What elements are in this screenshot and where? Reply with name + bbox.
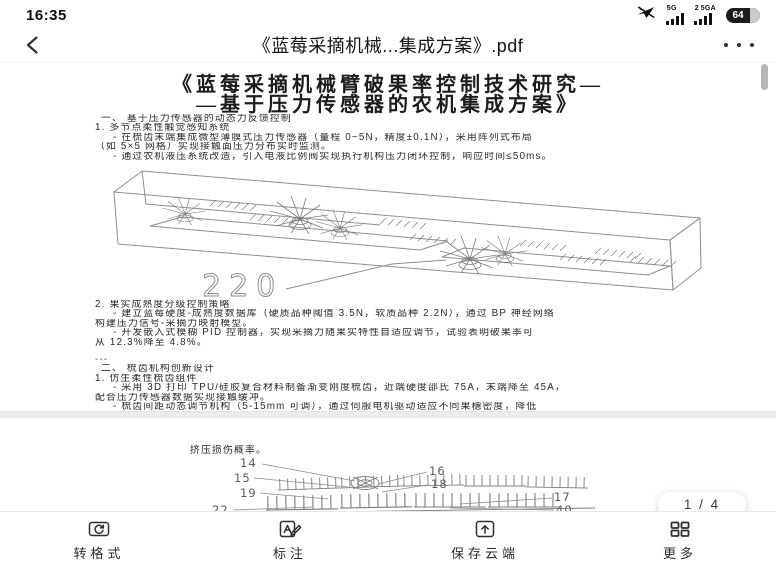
pdf-page-viewport[interactable]: 《蓝莓采摘机械臂破果率控制技术研究— —基于压力传感器的农机集成方案》 一、 基… [0, 63, 776, 511]
save-cloud-label: 保存云端 [451, 543, 519, 561]
doc-text-line: 二、 梳齿机构创新设计 [95, 364, 695, 373]
back-button[interactable] [20, 33, 44, 57]
doc-text-line: 1. 多节点柔性触觉感知系统 [95, 123, 695, 132]
page-separator [0, 411, 776, 418]
figure2-callout: 18 [431, 477, 448, 491]
annotate-button[interactable]: 标注 [225, 517, 355, 561]
doc-text-line: - 通过农机液压系统改造，引入电液比例阀实现执行机构压力闭环控制，响应时间≤50… [95, 152, 695, 161]
doc-text-line: - 梳齿间距动态调节机构（5-15mm 可调），通过伺服电机驱动适应不同果穗密度… [95, 402, 695, 411]
dot-icon [750, 43, 754, 47]
body-text-block-2: 2. 果实成熟度分级控制策略 - 建立蓝莓硬度-成熟度数据库（硬质品种阈值 3.… [95, 300, 695, 411]
back-chevron-icon [23, 35, 41, 55]
body-text-block-1: 一、 基于压力传感器的动态力反馈控制 1. 多节点柔性触觉感知系统 - 在梳齿末… [95, 114, 695, 161]
figure2-comb-drawing: 14 15 19 22 16 18 17 40 [150, 453, 610, 511]
figure2-callout: 22 [212, 503, 229, 511]
save-cloud-button[interactable]: 保存云端 [420, 517, 550, 561]
doc-text-line: （如 5×5 网格）实现接触面压力分布实时监测。 [95, 142, 695, 151]
page-indicator: 1 / 4 [657, 491, 747, 511]
figure1-dimension-label: 220 [202, 269, 283, 300]
figure2-callout: 16 [429, 464, 446, 478]
clock: 16:35 [26, 7, 67, 24]
battery-level: 64 [726, 8, 750, 23]
convert-format-label: 转格式 [73, 543, 124, 561]
figure2-callout: 17 [554, 490, 571, 504]
figure2-callout: 19 [240, 486, 257, 500]
battery-icon: 64 [726, 8, 760, 23]
save-cloud-icon [472, 517, 498, 541]
scrollbar-thumb[interactable] [761, 64, 768, 90]
doc-text-line: 构建压力信号-采摘力映射模型。 [95, 319, 695, 328]
doc-text-line: 2. 果实成熟度分级控制策略 [95, 300, 695, 309]
doc-text-line: - 采用 3D 打印 TPU/硅胶复合材料制备渐变刚度梳齿，近端硬度邵氏 75A… [95, 383, 695, 392]
figure2-callout: 14 [240, 456, 257, 470]
pdf-heading-line2: —基于压力传感器的农机集成方案》 [0, 96, 776, 116]
doc-text-line: 从 12.3%降至 4.8%。 [95, 338, 695, 347]
nav-bar: 《蓝莓采摘机械...集成方案》.pdf [0, 28, 776, 63]
more-label: 更多 [663, 543, 697, 561]
dot-icon [737, 43, 741, 47]
annotate-label: 标注 [273, 543, 307, 561]
dot-icon [724, 43, 728, 47]
more-grid-icon [667, 517, 693, 541]
figure2-callout: 40 [556, 503, 573, 511]
bottom-toolbar: 转格式 标注 保存云端 [0, 511, 776, 561]
convert-format-button[interactable]: 转格式 [34, 517, 164, 561]
annotate-icon [277, 517, 303, 541]
figure1-harvester-drawing: 220 [90, 162, 712, 300]
more-menu-button[interactable] [722, 37, 756, 53]
mute-icon [636, 5, 656, 25]
doc-text-line: 一、 基于压力传感器的动态力反馈控制 [95, 114, 695, 123]
signal-sim1-icon: 5G [666, 5, 684, 25]
convert-format-icon [86, 517, 112, 541]
doc-separator-line: --- [95, 355, 695, 364]
status-bar: 16:35 5G 2 5GA [0, 0, 776, 28]
doc-text-line: - 开发嵌入式模糊 PID 控制器，实现采摘力随果实特性自适应调节，试验表明破果… [95, 328, 695, 337]
doc-text-line: - 建立蓝莓硬度-成熟度数据库（硬质品种阈值 3.5N，软质品种 2.2N），通… [95, 309, 695, 318]
pdf-viewer-screen: 16:35 5G 2 5GA [0, 0, 776, 561]
document-title: 《蓝莓采摘机械...集成方案》.pdf [253, 32, 524, 58]
signal-sim2-icon: 2 5GA [694, 5, 716, 25]
status-icons: 5G 2 5GA 64 [636, 5, 760, 25]
pdf-heading: 《蓝莓采摘机械臂破果率控制技术研究— —基于压力传感器的农机集成方案》 [0, 76, 776, 115]
pdf-heading-line1: 《蓝莓采摘机械臂破果率控制技术研究— [0, 76, 776, 96]
doc-text-line: - 在梳齿末端集成微型薄膜式压力传感器（量程 0~5N，精度±0.1N），采用阵… [95, 133, 695, 142]
more-button[interactable]: 更多 [615, 517, 745, 561]
doc-text-line: 1. 仿生柔性梳齿组件 [95, 374, 695, 383]
figure2-callout: 15 [234, 471, 251, 485]
doc-text-line: 配合压力传感器数据实现接触缓冲。 [95, 393, 695, 402]
